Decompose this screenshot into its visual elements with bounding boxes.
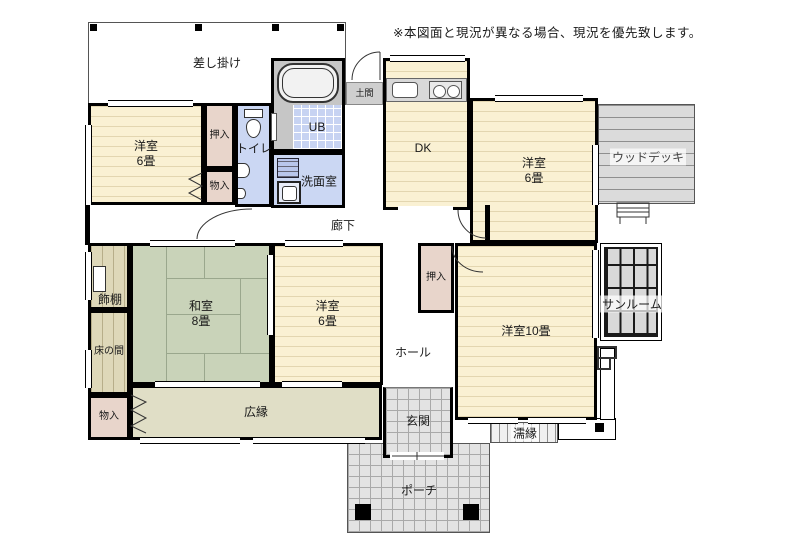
room-label: 洗面室 [301,173,337,190]
room-label: 物入 [99,411,119,424]
floor-plan: ※本図面と現況が異なる場合、現況を優先致します。 差し掛け ウッドデッキ ポーチ… [0,0,785,556]
pillar-icon [463,504,479,520]
entrance-door-opening [390,452,444,460]
window [140,437,240,444]
toilet-icon [244,109,263,118]
kitchen-sink-icon [392,82,418,98]
sliding-door [285,240,343,247]
bathtub-icon [277,63,339,103]
pillar-icon [595,423,604,432]
window [85,252,92,300]
room-doma: 土間 [346,82,383,105]
room-label: 濡縁 [511,425,539,442]
room-hiroen: 広縁 [130,385,382,440]
room-genkan: 玄関 [383,387,453,458]
room-label: 土間 [355,88,373,99]
room-label: トイレ [236,140,272,157]
door-arc [197,209,252,239]
shelf-icon [93,266,106,292]
pillar-icon [355,504,371,520]
hand-basin-icon [238,188,246,199]
steps-icon [617,203,649,224]
room-kazaridana: 飾棚 [88,243,130,310]
room-label-hall: ホール [395,344,431,361]
room-label: 洋室10畳 [501,324,550,339]
room-toilet: トイレ [235,103,272,207]
window [592,250,599,338]
room-monoire-bottom: 物入 [88,395,130,440]
window [390,55,465,62]
room-label: 洋室 6畳 [522,156,546,186]
room-label: 玄関 [406,414,430,429]
pillar-icon [337,24,344,31]
ub-tile-floor: UB [293,105,342,149]
room-label: DK [415,141,432,155]
room-label: 床の間 [94,346,124,359]
pillar-icon [195,24,202,31]
room-oshiire-top: 押入 [204,103,235,169]
pillar-icon [272,24,279,31]
room-label: 洋室 6畳 [315,299,339,329]
stove-icon [429,81,462,99]
pillar-icon [90,24,97,31]
window [495,95,583,102]
room-label: 和室 8畳 [189,299,213,329]
room-yoshitsu6-mid: 洋室 6畳 [272,243,383,385]
stone-path [600,348,615,420]
window [108,100,193,107]
room-label: 洋室 6畳 [134,139,158,169]
sliding-door [150,240,235,247]
washing-machine-icon [277,158,299,178]
room-tokonoma: 床の間 [88,310,130,395]
sliding-door [155,381,260,388]
door-arc [352,52,380,80]
room-label: 差し掛け [193,56,241,71]
room-label-rouka: 廊下 [331,217,355,234]
room-sunroom: サンルーム [600,243,662,341]
wall [485,205,490,245]
room-label: ウッドデッキ [610,149,686,166]
room-oshiire-mid: 押入 [418,243,454,313]
room-washitsu-8: 和室 8畳 [130,243,272,385]
room-yoshitsu10: 洋室10畳 [455,243,597,420]
room-nureen: 濡縁 [490,422,558,443]
window [592,145,599,205]
room-dk: DK [383,58,470,210]
room-label: 広縁 [244,405,268,420]
room-label: ポーチ [401,482,437,499]
vanity-sink-icon [277,181,301,204]
window [253,437,365,444]
room-bath: UB [271,58,345,152]
kitchen-counter [386,78,467,102]
window [85,125,92,205]
disclaimer-note: ※本図面と現況が異なる場合、現況を優先致します。 [393,22,702,41]
room-yoshitsu6-left: 洋室 6畳 [88,103,204,205]
hand-basin-icon [238,163,250,178]
sliding-door [282,381,342,388]
room-wooddeck: ウッドデッキ [598,104,695,204]
room-label: 飾棚 [98,291,122,308]
window [528,417,586,424]
window [468,417,518,424]
toilet-icon [246,119,261,138]
room-senmen: 洗面室 [271,152,345,208]
opening [398,206,453,214]
room-label: 押入 [210,130,230,143]
bath-door [271,113,277,141]
room-label: 物入 [210,181,230,194]
room-label: UB [309,120,326,134]
room-label: 押入 [426,272,446,285]
room-monoire-top: 物入 [204,169,235,205]
sunroom-glass-grid [604,247,658,337]
room-label: サンルーム [600,296,664,313]
sliding-door [267,255,274,335]
window [85,350,92,388]
wall [85,205,90,245]
